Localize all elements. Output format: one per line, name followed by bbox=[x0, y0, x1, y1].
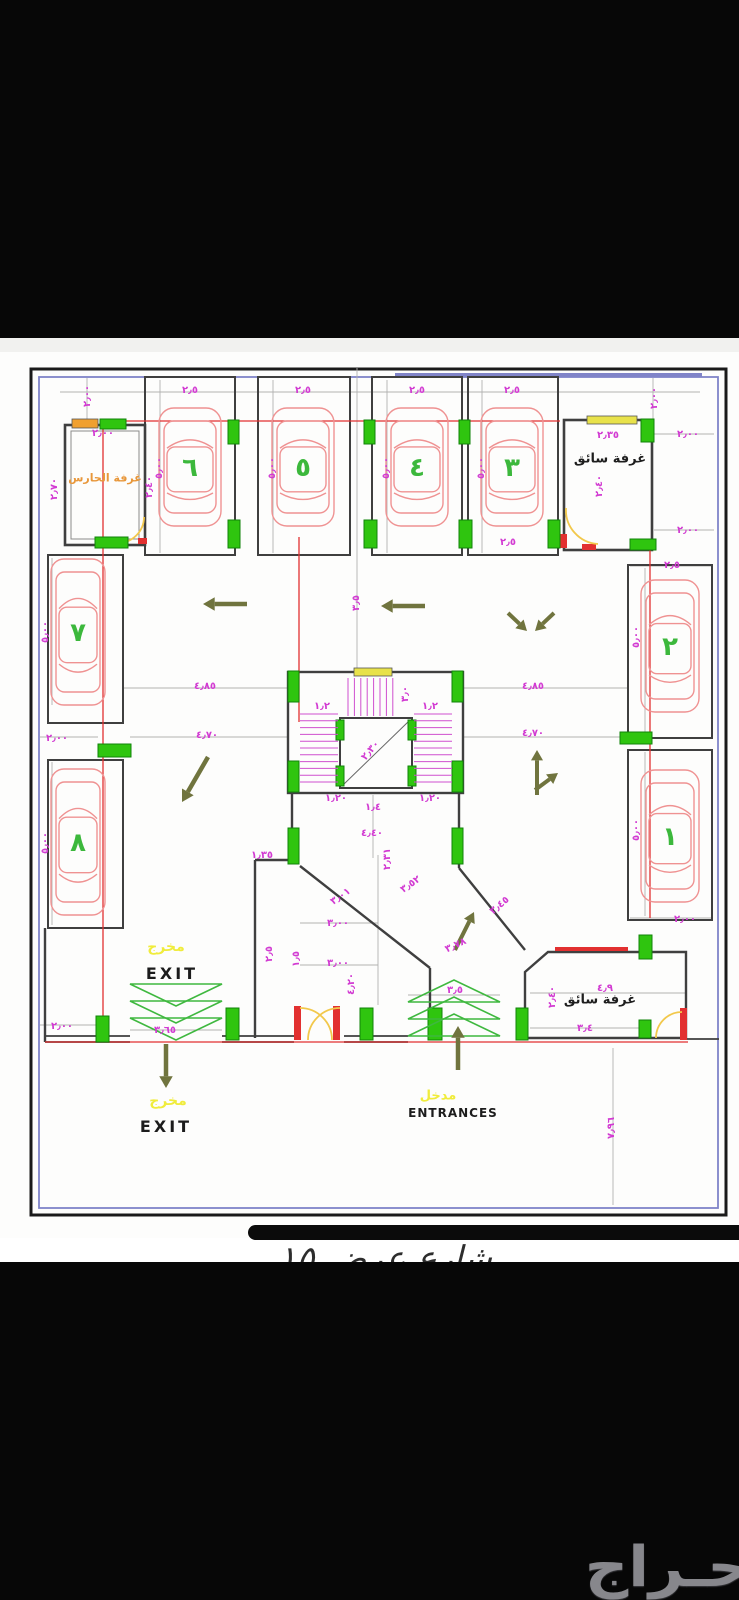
walls bbox=[45, 377, 719, 1042]
svg-text:٥: ٥ bbox=[295, 453, 311, 483]
bottom-letterbox: حـراج bbox=[0, 1262, 739, 1600]
car-٣: ٣ bbox=[481, 408, 543, 526]
red-lines bbox=[45, 421, 688, 1042]
car-٨: ٨ bbox=[51, 769, 105, 915]
svg-text:٧: ٧ bbox=[70, 618, 86, 648]
haraj-watermark: حـراج bbox=[585, 1535, 739, 1600]
dimension-lines bbox=[40, 368, 714, 1205]
svg-text:٨: ٨ bbox=[70, 828, 86, 858]
svg-text:٢: ٢ bbox=[662, 632, 678, 662]
screenshot-stage: ٦٥٤٣٧٨٢١ ٢٫٠٠٢٫٠٠٢٫٥٢٫٥٢٫٥٢٫٥٢٫٠٠٢٫٤٠٢٫٧… bbox=[0, 0, 739, 1600]
svg-text:١: ١ bbox=[662, 822, 678, 852]
ramp-chevrons bbox=[130, 980, 500, 1040]
driver-room-window bbox=[587, 416, 637, 424]
guard-room-window bbox=[72, 419, 98, 428]
car-٧: ٧ bbox=[51, 559, 105, 705]
stair-treads bbox=[300, 678, 452, 782]
doors-windows bbox=[72, 416, 682, 1040]
parked-cars: ٦٥٤٣٧٨٢١ bbox=[51, 408, 699, 915]
stair-window bbox=[354, 668, 392, 676]
progress-bar bbox=[248, 1225, 739, 1240]
street-note-text: شارع عرض ١٥ bbox=[278, 1239, 492, 1262]
car-٥: ٥ bbox=[272, 408, 334, 526]
svg-text:٤: ٤ bbox=[409, 453, 425, 483]
car-٤: ٤ bbox=[386, 408, 448, 526]
svg-text:٣: ٣ bbox=[504, 453, 520, 483]
svg-text:٦: ٦ bbox=[182, 453, 198, 483]
door-swing-arcs bbox=[118, 508, 682, 1040]
car-٦: ٦ bbox=[159, 408, 221, 526]
street-note: شارع عرض ١٥ bbox=[170, 1239, 600, 1262]
